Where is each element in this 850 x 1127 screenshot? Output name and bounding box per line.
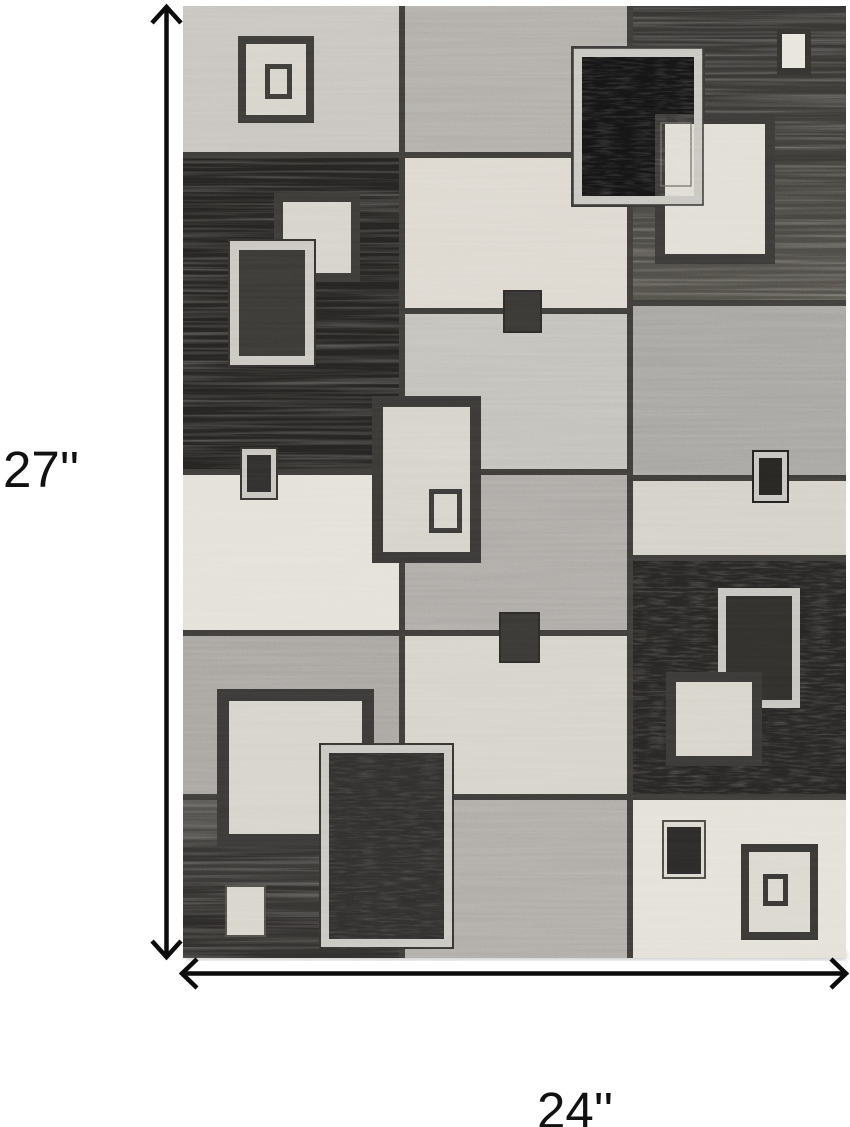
- svg-text:27'': 27'': [3, 441, 79, 498]
- svg-text:24'': 24'': [537, 1082, 613, 1127]
